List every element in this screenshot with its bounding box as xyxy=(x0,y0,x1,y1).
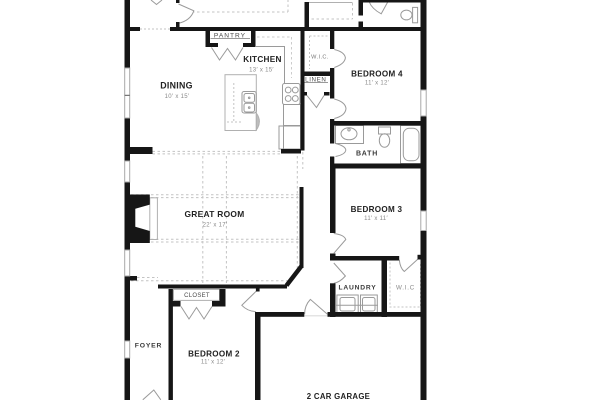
svg-text:11′ x 12′: 11′ x 12′ xyxy=(365,81,390,87)
svg-text:W.I.C.: W.I.C. xyxy=(311,55,329,61)
svg-text:W.I.C: W.I.C xyxy=(396,284,415,291)
svg-text:DINING: DINING xyxy=(160,81,193,91)
svg-text:BATH: BATH xyxy=(356,151,378,158)
svg-text:LAUNDRY: LAUNDRY xyxy=(338,284,376,291)
svg-text:BEDROOM 4: BEDROOM 4 xyxy=(351,70,403,79)
svg-text:22′ x 17′: 22′ x 17′ xyxy=(203,223,228,229)
svg-text:2 CAR GARAGE: 2 CAR GARAGE xyxy=(307,392,370,400)
svg-text:11′ x 11′: 11′ x 11′ xyxy=(364,216,388,222)
svg-text:LINEN: LINEN xyxy=(305,77,326,84)
svg-text:BEDROOM 2: BEDROOM 2 xyxy=(188,350,240,359)
svg-text:CLOSET: CLOSET xyxy=(184,293,210,299)
svg-text:KITCHEN: KITCHEN xyxy=(243,55,282,64)
svg-text:GREAT ROOM: GREAT ROOM xyxy=(184,209,244,219)
svg-text:13′ x 15′: 13′ x 15′ xyxy=(249,68,274,74)
svg-text:BEDROOM 3: BEDROOM 3 xyxy=(351,205,403,214)
svg-text:FOYER: FOYER xyxy=(135,342,162,349)
svg-text:11′ x 12′: 11′ x 12′ xyxy=(201,360,226,366)
svg-text:PANTRY: PANTRY xyxy=(214,32,246,39)
svg-text:10′ x 15′: 10′ x 15′ xyxy=(165,94,190,100)
